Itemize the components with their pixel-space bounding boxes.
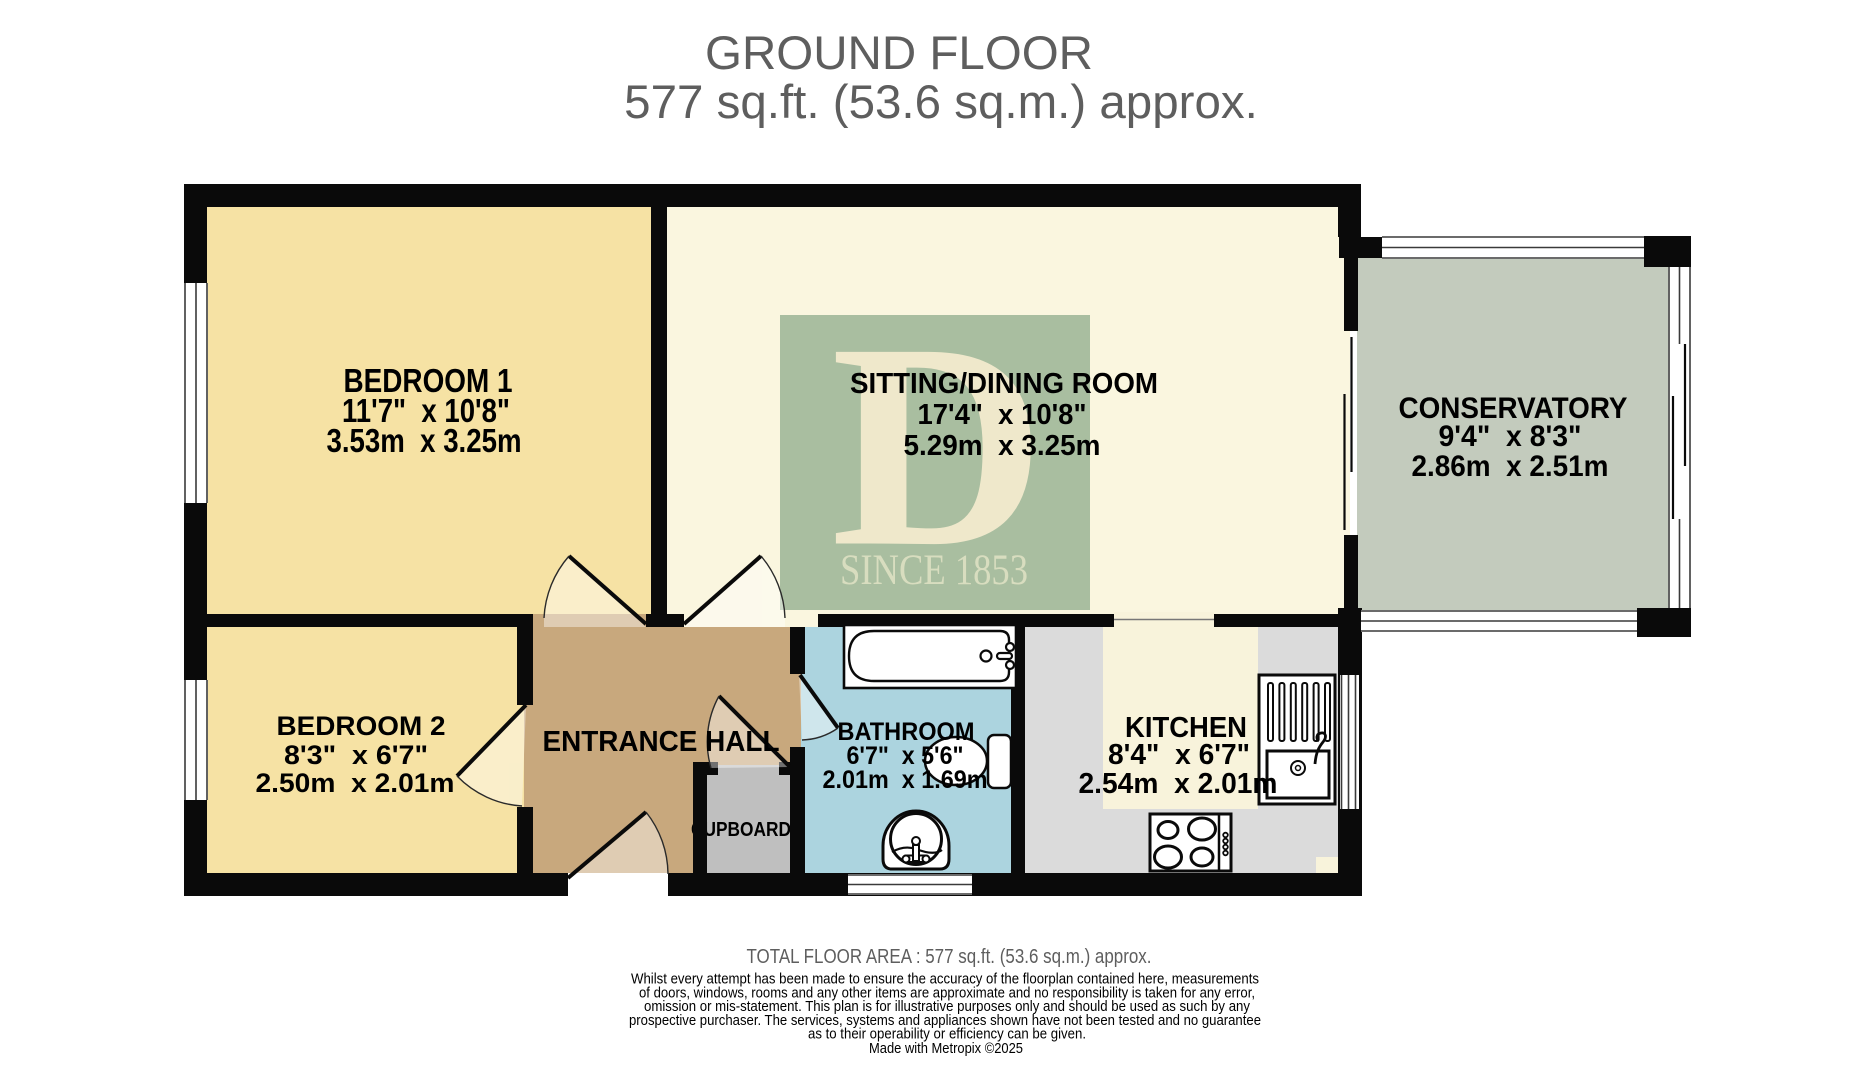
svg-text:GROUND FLOOR: GROUND FLOOR xyxy=(705,27,1093,80)
svg-text:SINCE 1853: SINCE 1853 xyxy=(840,547,1028,594)
svg-text:577 sq.ft. (53.6 sq.m.) approx: 577 sq.ft. (53.6 sq.m.) approx. xyxy=(624,76,1258,129)
svg-text:8'3" x 6'7": 8'3" x 6'7" xyxy=(284,740,428,770)
svg-text:TOTAL FLOOR AREA : 577 sq.ft.: TOTAL FLOOR AREA : 577 sq.ft. (53.6 sq.m… xyxy=(747,945,1152,968)
svg-text:9'4" x 8'3": 9'4" x 8'3" xyxy=(1439,420,1582,453)
svg-text:ENTRANCE HALL: ENTRANCE HALL xyxy=(543,726,780,758)
svg-text:SITTING/DINING ROOM: SITTING/DINING ROOM xyxy=(850,368,1158,400)
svg-text:5.29m x 3.25m: 5.29m x 3.25m xyxy=(904,430,1101,462)
svg-text:BEDROOM 2: BEDROOM 2 xyxy=(277,711,446,741)
svg-text:2.54m x 2.01m: 2.54m x 2.01m xyxy=(1079,768,1278,800)
svg-text:2.50m x 2.01m: 2.50m x 2.01m xyxy=(256,768,455,798)
svg-text:3.53m x 3.25m: 3.53m x 3.25m xyxy=(327,422,522,459)
svg-text:Made with Metropix ©2025: Made with Metropix ©2025 xyxy=(869,1040,1023,1057)
svg-text:2.01m x 1.69m: 2.01m x 1.69m xyxy=(823,766,988,794)
svg-text:17'4" x 10'8": 17'4" x 10'8" xyxy=(918,399,1087,431)
svg-text:8'4" x 6'7": 8'4" x 6'7" xyxy=(1108,739,1250,771)
svg-text:2.86m x 2.51m: 2.86m x 2.51m xyxy=(1412,450,1609,483)
